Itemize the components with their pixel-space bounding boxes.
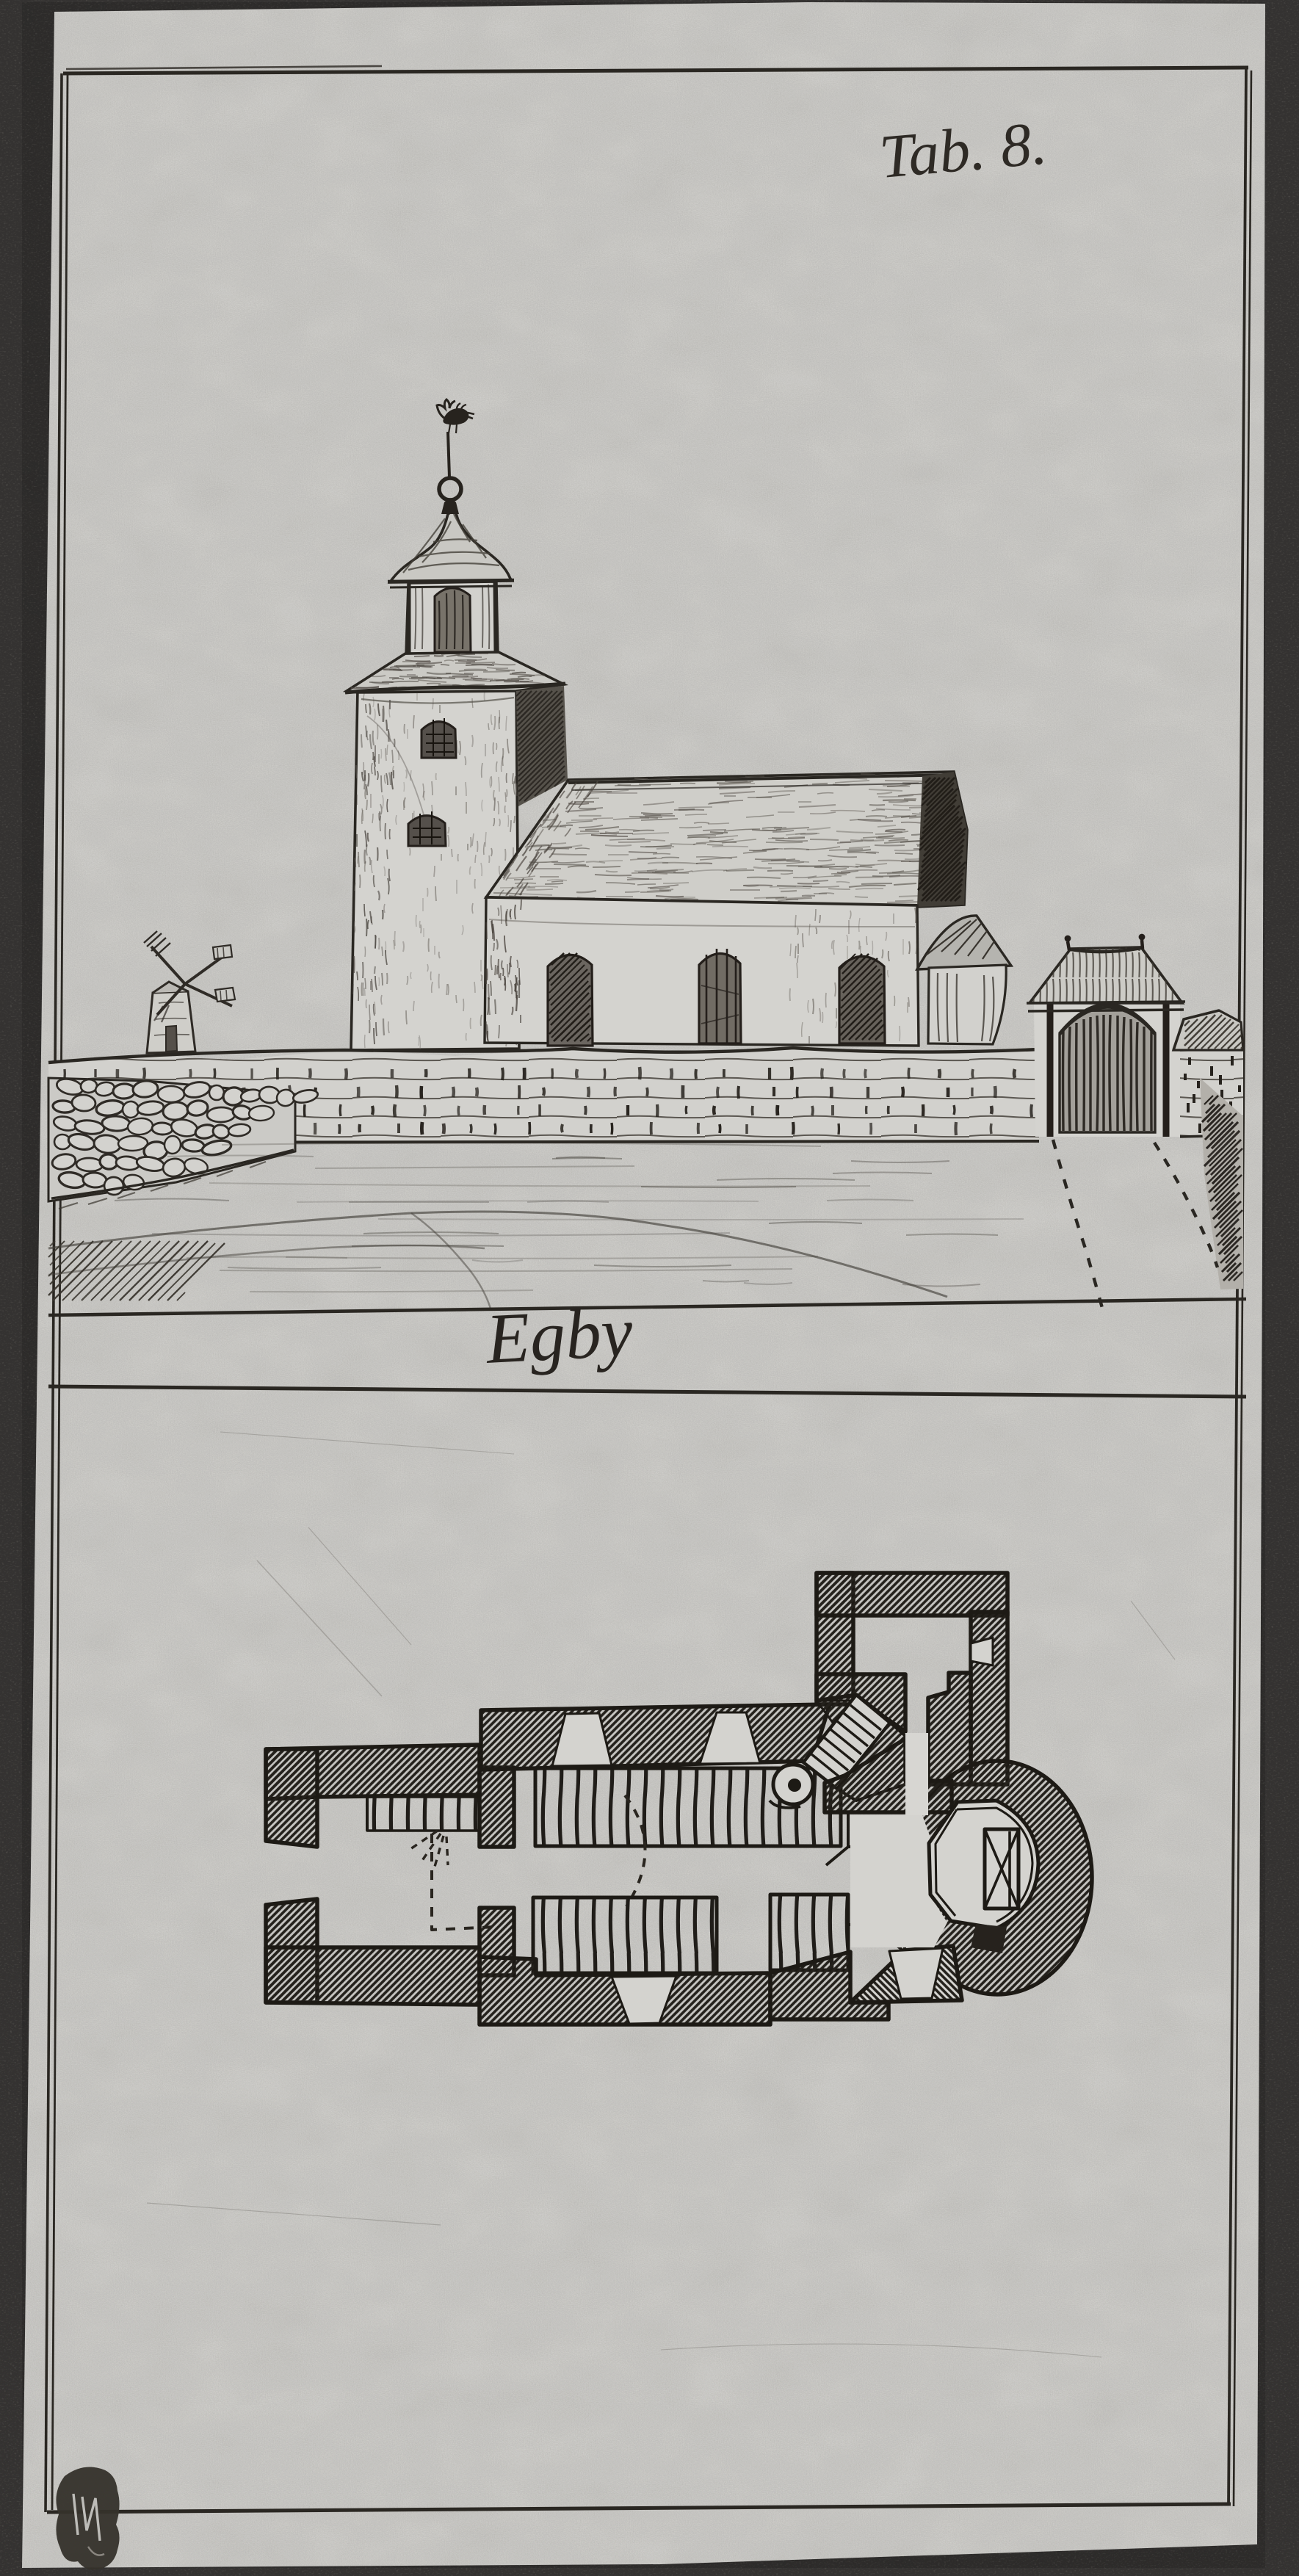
- svg-text:Egby: Egby: [483, 1292, 636, 1378]
- svg-text:Tab. 8.: Tab. 8.: [877, 109, 1049, 192]
